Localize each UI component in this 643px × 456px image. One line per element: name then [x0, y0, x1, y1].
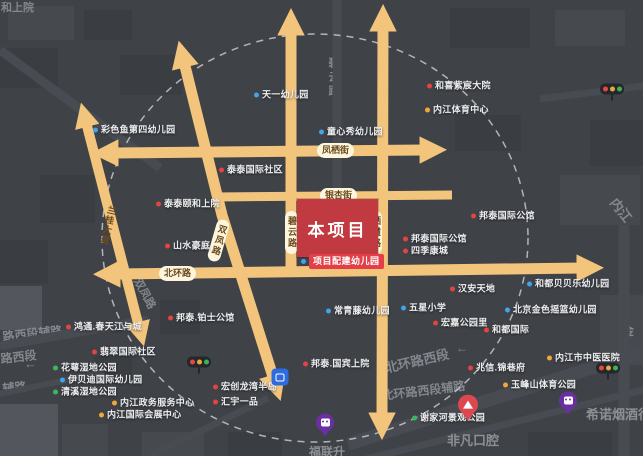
road-qixia: [382, 26, 383, 418]
poi-dot-icon: [433, 321, 438, 326]
traffic-light-pole: [611, 95, 613, 101]
poi-label: 和都国际: [484, 326, 529, 335]
store-pin-icon: [559, 392, 577, 415]
poi-text: 鸿通.春天江与城: [74, 323, 142, 332]
poi-text: 和都贝贝乐幼儿园: [535, 280, 609, 289]
project-kindergarten-badge: 项目配建幼儿园: [301, 254, 384, 269]
poi-label: 宏嘉公园里: [433, 319, 488, 328]
poi-text: 伊贝迪国际幼儿园: [68, 376, 142, 385]
store-pin-tail: [321, 431, 329, 437]
poi-label: 泰泰颐和上院: [156, 200, 220, 209]
traffic-light-lamp: [613, 366, 618, 371]
store-poi-label: 希诺烟酒行: [586, 408, 643, 421]
poi-label: 玉峰山体育公园: [503, 381, 576, 390]
traffic-light-lamp: [617, 87, 622, 92]
poi-text: 汇宇一品: [221, 398, 258, 407]
store-poi-label: 非凡口腔: [447, 434, 499, 447]
poi-label: 邦泰.铂士公馆: [168, 314, 235, 323]
poi-text: 和喜紫宸大院: [435, 82, 491, 91]
traffic-light-body: [187, 357, 211, 368]
poi-label: 汉安天地: [450, 285, 495, 294]
poi-dot-icon: [213, 385, 218, 390]
poi-text: 兆信.锦巷府: [476, 364, 525, 373]
poi-dot-icon: [468, 366, 473, 371]
traffic-light-icon: [600, 84, 624, 101]
poi-dot-icon: [213, 400, 218, 405]
map-pin-head: [458, 395, 478, 415]
traffic-light-icon: [596, 363, 620, 380]
bg-road: [540, 86, 643, 99]
store-pin-tail: [564, 409, 572, 415]
transit-station-icon: [272, 369, 289, 386]
traffic-light-lamp: [190, 360, 195, 365]
poi-label: 童心秀幼儿园: [319, 128, 383, 137]
traffic-light-lamp: [599, 366, 604, 371]
poi-dot-icon: [450, 287, 455, 292]
poi-dot-icon: [53, 366, 58, 371]
project-site-block: 本项目: [297, 199, 378, 257]
map-pin-tail: [462, 413, 474, 421]
poi-text: 和都国际: [492, 326, 529, 335]
poi-label: 五星小学: [401, 304, 446, 313]
poi-label: 邦泰.国宾上院: [303, 360, 370, 369]
poi-label: 宏创龙湾半岛: [213, 383, 277, 392]
project-site-label: 本项目: [308, 216, 368, 241]
poi-label: 花萼湿地公园: [53, 364, 117, 373]
poi-text: 常青藤幼儿园: [334, 307, 390, 316]
poi-label: 伊贝迪国际幼儿园: [60, 376, 142, 385]
poi-label: 汇宇一品: [213, 398, 258, 407]
poi-text: 清溪湿地公园: [61, 388, 117, 397]
poi-text: 邦泰.国宾上院: [311, 360, 370, 369]
poi-dot-icon: [112, 401, 117, 406]
poi-text: 天一幼儿园: [262, 91, 309, 100]
poi-text: 山水豪庭: [173, 242, 210, 251]
poi-dot-icon: [219, 168, 224, 173]
poi-dot-icon: [412, 416, 417, 421]
poi-label: 天一幼儿园: [254, 91, 309, 100]
traffic-light-pole: [198, 368, 200, 374]
poi-dot-icon: [403, 237, 408, 242]
traffic-light-lamp: [197, 360, 202, 365]
poi-dot-icon: [92, 350, 97, 355]
traffic-light-body: [596, 363, 620, 374]
poi-dot-icon: [401, 306, 406, 311]
store-pin-glyph: [564, 397, 573, 405]
traffic-light-lamp: [603, 87, 608, 92]
road-fengqi-street: [113, 150, 425, 153]
poi-text: 邦泰.铂士公馆: [176, 314, 235, 323]
poi-dot-icon: [403, 249, 408, 254]
traffic-light-pole: [607, 374, 609, 380]
map-canvas: 和上院碧云路双凤路北环路西段北环路西段辅路路西段辅路路西段辅路内江金←← 凤栖街…: [0, 0, 643, 456]
poi-label: 内江市中医医院: [547, 354, 620, 363]
poi-dot-icon: [254, 93, 259, 98]
poi-label: 翡翠国际社区: [92, 348, 156, 357]
store-pin-head: [316, 414, 334, 432]
poi-label: 鸿通.春天江与城: [66, 323, 142, 332]
poi-text: 汉安天地: [458, 285, 495, 294]
poi-text: 邦泰国际公馆: [411, 235, 467, 244]
poi-label: 和喜紫宸大院: [427, 82, 491, 91]
poi-text: 玉峰山体育公园: [511, 381, 576, 390]
poi-dot-icon: [93, 128, 98, 133]
poi-text: 内江体育中心: [433, 106, 489, 115]
poi-dot-icon: [505, 308, 510, 313]
poi-text: 邦泰国际公馆: [479, 212, 535, 221]
poi-dot-icon: [66, 325, 71, 330]
road-label: 北环路: [159, 266, 196, 281]
poi-label: 邦泰国际公馆: [471, 212, 535, 221]
poi-label: 内江体育中心: [425, 106, 489, 115]
store-pin-icon: [316, 414, 334, 437]
traffic-light-body: [600, 84, 624, 95]
map-pin-glyph: [463, 401, 473, 409]
poi-dot-icon: [99, 413, 104, 418]
poi-label: 内江国际会展中心: [99, 411, 181, 420]
poi-dot-icon: [471, 214, 476, 219]
poi-dot-icon: [527, 282, 532, 287]
poi-text: 内江市中医医院: [555, 354, 620, 363]
poi-label: 泰泰国际社区: [219, 166, 283, 175]
store-pin-head: [559, 392, 577, 410]
poi-text: 内江政务服务中心: [120, 399, 194, 408]
poi-text: 宏嘉公园里: [441, 319, 488, 328]
poi-text: 泰泰颐和上院: [164, 200, 220, 209]
poi-text: 北京金色摇篮幼儿园: [513, 306, 597, 315]
poi-label: 山水豪庭: [165, 242, 210, 251]
poi-dot-icon: [303, 362, 308, 367]
poi-text: 四季康城: [411, 247, 448, 256]
poi-label: 和都贝贝乐幼儿园: [527, 280, 609, 289]
traffic-light-lamp: [610, 87, 615, 92]
poi-dot-icon: [503, 383, 508, 388]
poi-dot-icon: [60, 378, 65, 383]
poi-label: 清溪湿地公园: [53, 388, 117, 397]
poi-label: 邦泰国际公馆: [403, 235, 467, 244]
poi-dot-icon: [165, 244, 170, 249]
traffic-light-lamp: [606, 366, 611, 371]
poi-text: 宏创龙湾半岛: [221, 383, 277, 392]
poi-text: 花萼湿地公园: [61, 364, 117, 373]
store-poi-label: 福联升: [309, 446, 345, 456]
poi-text: 内江国际会展中心: [107, 411, 181, 420]
poi-dot-icon: [168, 316, 173, 321]
traffic-light-lamp: [204, 360, 209, 365]
poi-dot-icon: [301, 259, 306, 264]
poi-label: 内江政务服务中心: [112, 399, 194, 408]
poi-text: 泰泰国际社区: [227, 166, 283, 175]
poi-dot-icon: [53, 390, 58, 395]
poi-label: 四季康城: [403, 247, 448, 256]
poi-dot-icon: [547, 356, 552, 361]
poi-label: 彩色鱼第四幼儿园: [93, 126, 175, 135]
road-label: 凤栖街: [317, 143, 354, 158]
poi-label: 北京金色摇篮幼儿园: [505, 306, 597, 315]
poi-label: 常青藤幼儿园: [326, 307, 390, 316]
poi-dot-icon: [425, 108, 430, 113]
map-pin-icon: [458, 395, 478, 421]
poi-dot-icon: [427, 84, 432, 89]
poi-text: 五星小学: [409, 304, 446, 313]
poi-dot-icon: [319, 130, 324, 135]
poi-dot-icon: [326, 309, 331, 314]
road-shuangfeng: [184, 62, 274, 380]
poi-text: 彩色鱼第四幼儿园: [101, 126, 175, 135]
poi-text: 翡翠国际社区: [100, 348, 156, 357]
poi-dot-icon: [156, 202, 161, 207]
store-pin-glyph: [321, 419, 330, 427]
transit-station-glyph: [276, 373, 285, 381]
poi-label: 兆信.锦巷府: [468, 364, 525, 373]
traffic-light-icon: [187, 357, 211, 374]
poi-text: 童心秀幼儿园: [327, 128, 383, 137]
project-kindergarten-label: 项目配建幼儿园: [309, 254, 384, 269]
poi-dot-icon: [484, 328, 489, 333]
